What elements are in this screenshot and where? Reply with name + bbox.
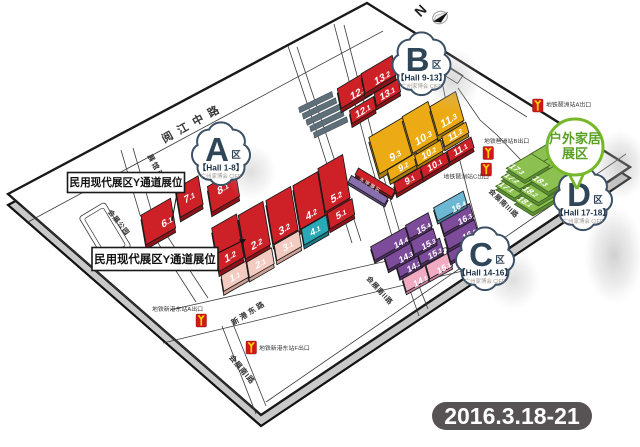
svg-text:区: 区	[495, 255, 505, 266]
svg-text:广州家博会 CIFF: 广州家博会 CIFF	[401, 82, 442, 90]
svg-text:民用现代展区Y通道展位: 民用现代展区Y通道展位	[69, 176, 182, 189]
svg-text:2016.3.18-21: 2016.3.18-21	[444, 403, 580, 429]
svg-text:【Hall 9-13】: 【Hall 9-13】	[396, 73, 447, 83]
svg-text:【Hall 14-16】: 【Hall 14-16】	[457, 268, 512, 278]
svg-text:地铁琶洲站B出口: 地铁琶洲站B出口	[484, 137, 529, 145]
svg-text:民用现代展区Y通道展位: 民用现代展区Y通道展位	[94, 252, 216, 266]
svg-text:地铁新港东站F出口: 地铁新港东站F出口	[259, 344, 310, 352]
svg-text:广州家博会 CIFF: 广州家博会 CIFF	[201, 172, 242, 180]
svg-text:展区: 展区	[562, 146, 588, 161]
svg-text:地铁新港东站A出口: 地铁新港东站A出口	[152, 305, 203, 313]
svg-text:地铁琶洲站A出口: 地铁琶洲站A出口	[546, 101, 591, 109]
svg-text:区: 区	[432, 60, 442, 71]
svg-text:区: 区	[231, 150, 241, 161]
svg-text:【Hall 17-18】: 【Hall 17-18】	[555, 208, 610, 218]
svg-text:【Hall 1-8】: 【Hall 1-8】	[198, 163, 244, 173]
svg-text:户外家居: 户外家居	[549, 131, 601, 146]
svg-text:区: 区	[593, 195, 603, 206]
svg-text:地铁琶洲站C出口: 地铁琶洲站C出口	[444, 173, 490, 181]
svg-text:广州家博会 CIFF: 广州家博会 CIFF	[563, 217, 604, 225]
svg-text:广州家博会 CIFF: 广州家博会 CIFF	[465, 277, 506, 285]
